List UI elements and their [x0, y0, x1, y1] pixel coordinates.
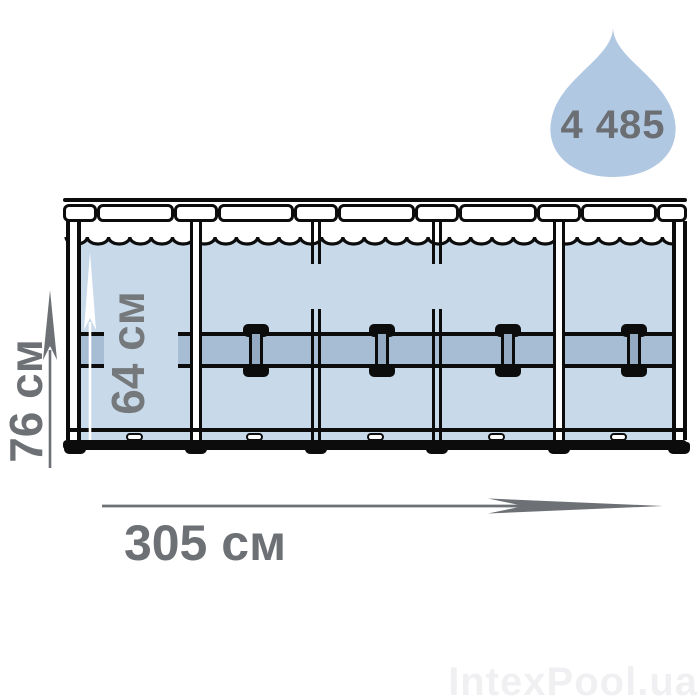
rail-segment: [218, 204, 294, 222]
connector-cap: [621, 364, 647, 377]
connector-stem: [375, 334, 389, 367]
back-leg-upper: [432, 218, 442, 264]
rail-sleeve: [657, 204, 687, 222]
back-leg-lower: [432, 309, 442, 440]
back-leg-lower: [311, 309, 321, 440]
connector-stem: [249, 334, 263, 367]
rail-sleeve: [294, 204, 338, 222]
connector-cap: [243, 364, 269, 377]
rail-segment: [581, 204, 657, 222]
rail-segment: [338, 204, 415, 222]
rail-sleeve: [174, 204, 218, 222]
bottom-rail: [63, 440, 687, 450]
rail-segment: [459, 204, 537, 222]
rail-sleeve: [537, 204, 581, 222]
band-connector: [621, 324, 647, 377]
pool-wall-right: [672, 221, 687, 440]
pool-leg: [553, 221, 565, 440]
bottom-rail-line: [66, 428, 687, 432]
connector-cap: [369, 364, 395, 377]
top-rail-edge: [63, 198, 687, 202]
watermark: IntexPool.ua: [398, 660, 698, 700]
water-drop-icon: [538, 24, 688, 180]
width-dimension-label: 305 см: [124, 514, 286, 572]
pool-diagram: 64 см 76 см 305 см 4 485 IntexPool.ua: [0, 0, 700, 700]
height-dimension-label: 76 см: [0, 339, 53, 463]
rail-segment: [63, 204, 97, 222]
pool-leg: [190, 221, 202, 440]
band-connector: [243, 324, 269, 377]
depth-dimension-label: 64 см: [101, 291, 155, 415]
depth-dimension-arrow: [76, 246, 104, 446]
connector-stem: [627, 334, 641, 367]
water-surface-line: [66, 237, 684, 244]
rail-segment: [97, 204, 174, 222]
band-connector: [495, 324, 521, 377]
back-leg-upper: [311, 218, 321, 264]
capacity-value: 4 485: [538, 103, 688, 148]
rail-sleeve: [415, 204, 459, 222]
connector-stem: [501, 334, 515, 367]
band-connector: [369, 324, 395, 377]
connector-cap: [495, 364, 521, 377]
